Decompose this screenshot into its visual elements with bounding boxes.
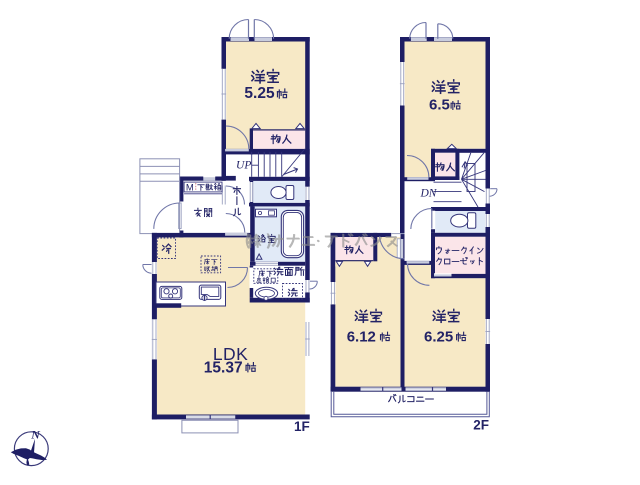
svg-text:6.12: 6.12 <box>347 329 376 346</box>
svg-text:N: N <box>30 427 41 441</box>
svg-text:2F: 2F <box>473 417 489 432</box>
svg-text:5.25: 5.25 <box>244 85 275 102</box>
svg-text:6.25: 6.25 <box>424 329 453 346</box>
svg-text:15.37: 15.37 <box>204 359 243 376</box>
svg-text:6.5: 6.5 <box>429 96 450 113</box>
svg-text:UP: UP <box>236 160 251 172</box>
svg-text:M: M <box>186 182 194 193</box>
svg-text:1F: 1F <box>294 419 310 434</box>
svg-text:DN: DN <box>420 188 438 200</box>
